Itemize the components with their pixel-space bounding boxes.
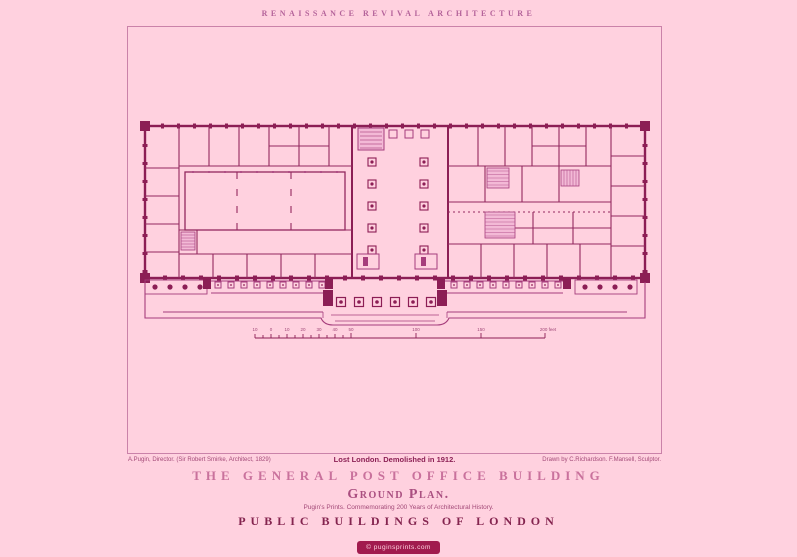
series-title: PUBLIC BUILDINGS OF LONDON [0,514,797,529]
central-portico [323,290,447,307]
right-wing [448,126,645,278]
poster-page: RENAISSANCE REVIVAL ARCHITECTURE [0,0,797,557]
captions-row: A.Pugin, Director. (Sir Robert Smirke, A… [127,455,662,467]
south-colonnade [145,279,637,294]
scale-label: 150 [477,327,485,332]
ground-plan-drawing: 10 0 10 20 30 40 50 100 150 200 feet [133,104,657,350]
scale-bar-labels: 10 0 10 20 30 40 50 100 150 200 feet [252,327,556,332]
scale-bar: 10 0 10 20 30 40 50 100 150 200 feet [252,327,556,338]
copyright-badge: © puginsprints.com [357,541,440,554]
tagline: Pugin's Prints. Commemorating 200 Years … [0,504,797,511]
scale-label: 10 [284,327,290,332]
scale-label: 200 feet [540,327,557,332]
credit-right: Drawn by C.Richardson. F.Mansell, Sculpt… [542,457,661,463]
scale-label: 50 [348,327,354,332]
scale-label: 0 [270,327,273,332]
badge-wrap: © puginsprints.com [0,536,797,554]
central-hall [357,128,437,269]
scale-label: 30 [316,327,322,332]
series-header: RENAISSANCE REVIVAL ARCHITECTURE [0,9,797,18]
plan-type-title: Ground Plan. [0,487,797,503]
left-wing [145,126,352,278]
scale-label: 20 [300,327,306,332]
scale-label: 10 [252,327,258,332]
building-title: THE GENERAL POST OFFICE BUILDING [0,468,797,484]
scale-label: 100 [412,327,420,332]
scale-label: 40 [332,327,338,332]
